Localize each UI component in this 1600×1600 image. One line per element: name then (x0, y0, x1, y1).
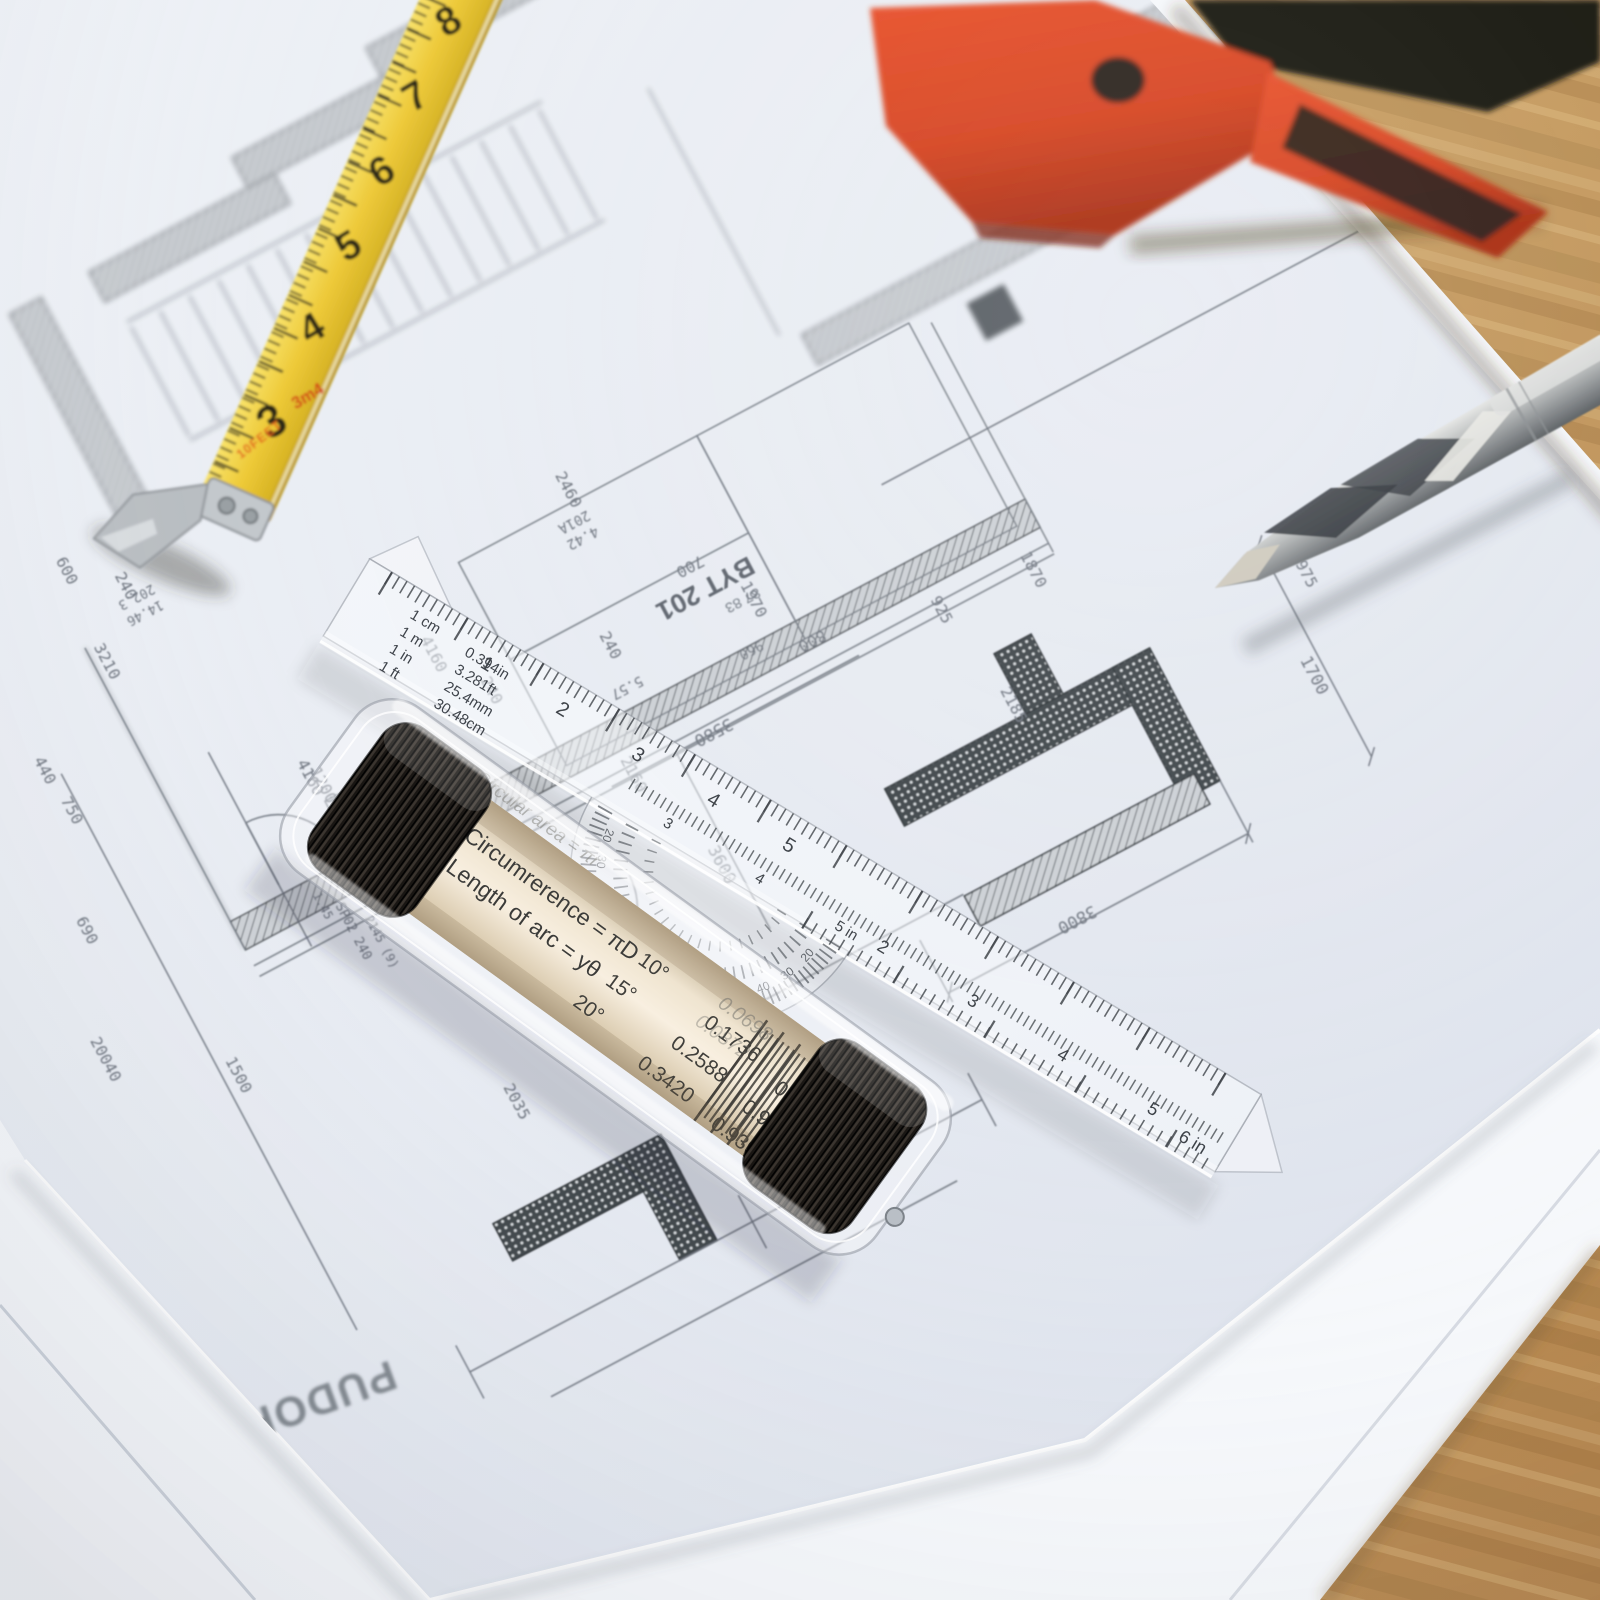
photo-scene: 600 240 202.3 14.46 3210 4160 240 1200 4… (0, 0, 1600, 1600)
lighting-vignette (0, 0, 1600, 1600)
scene-svg: 600 240 202.3 14.46 3210 4160 240 1200 4… (0, 0, 1600, 1600)
